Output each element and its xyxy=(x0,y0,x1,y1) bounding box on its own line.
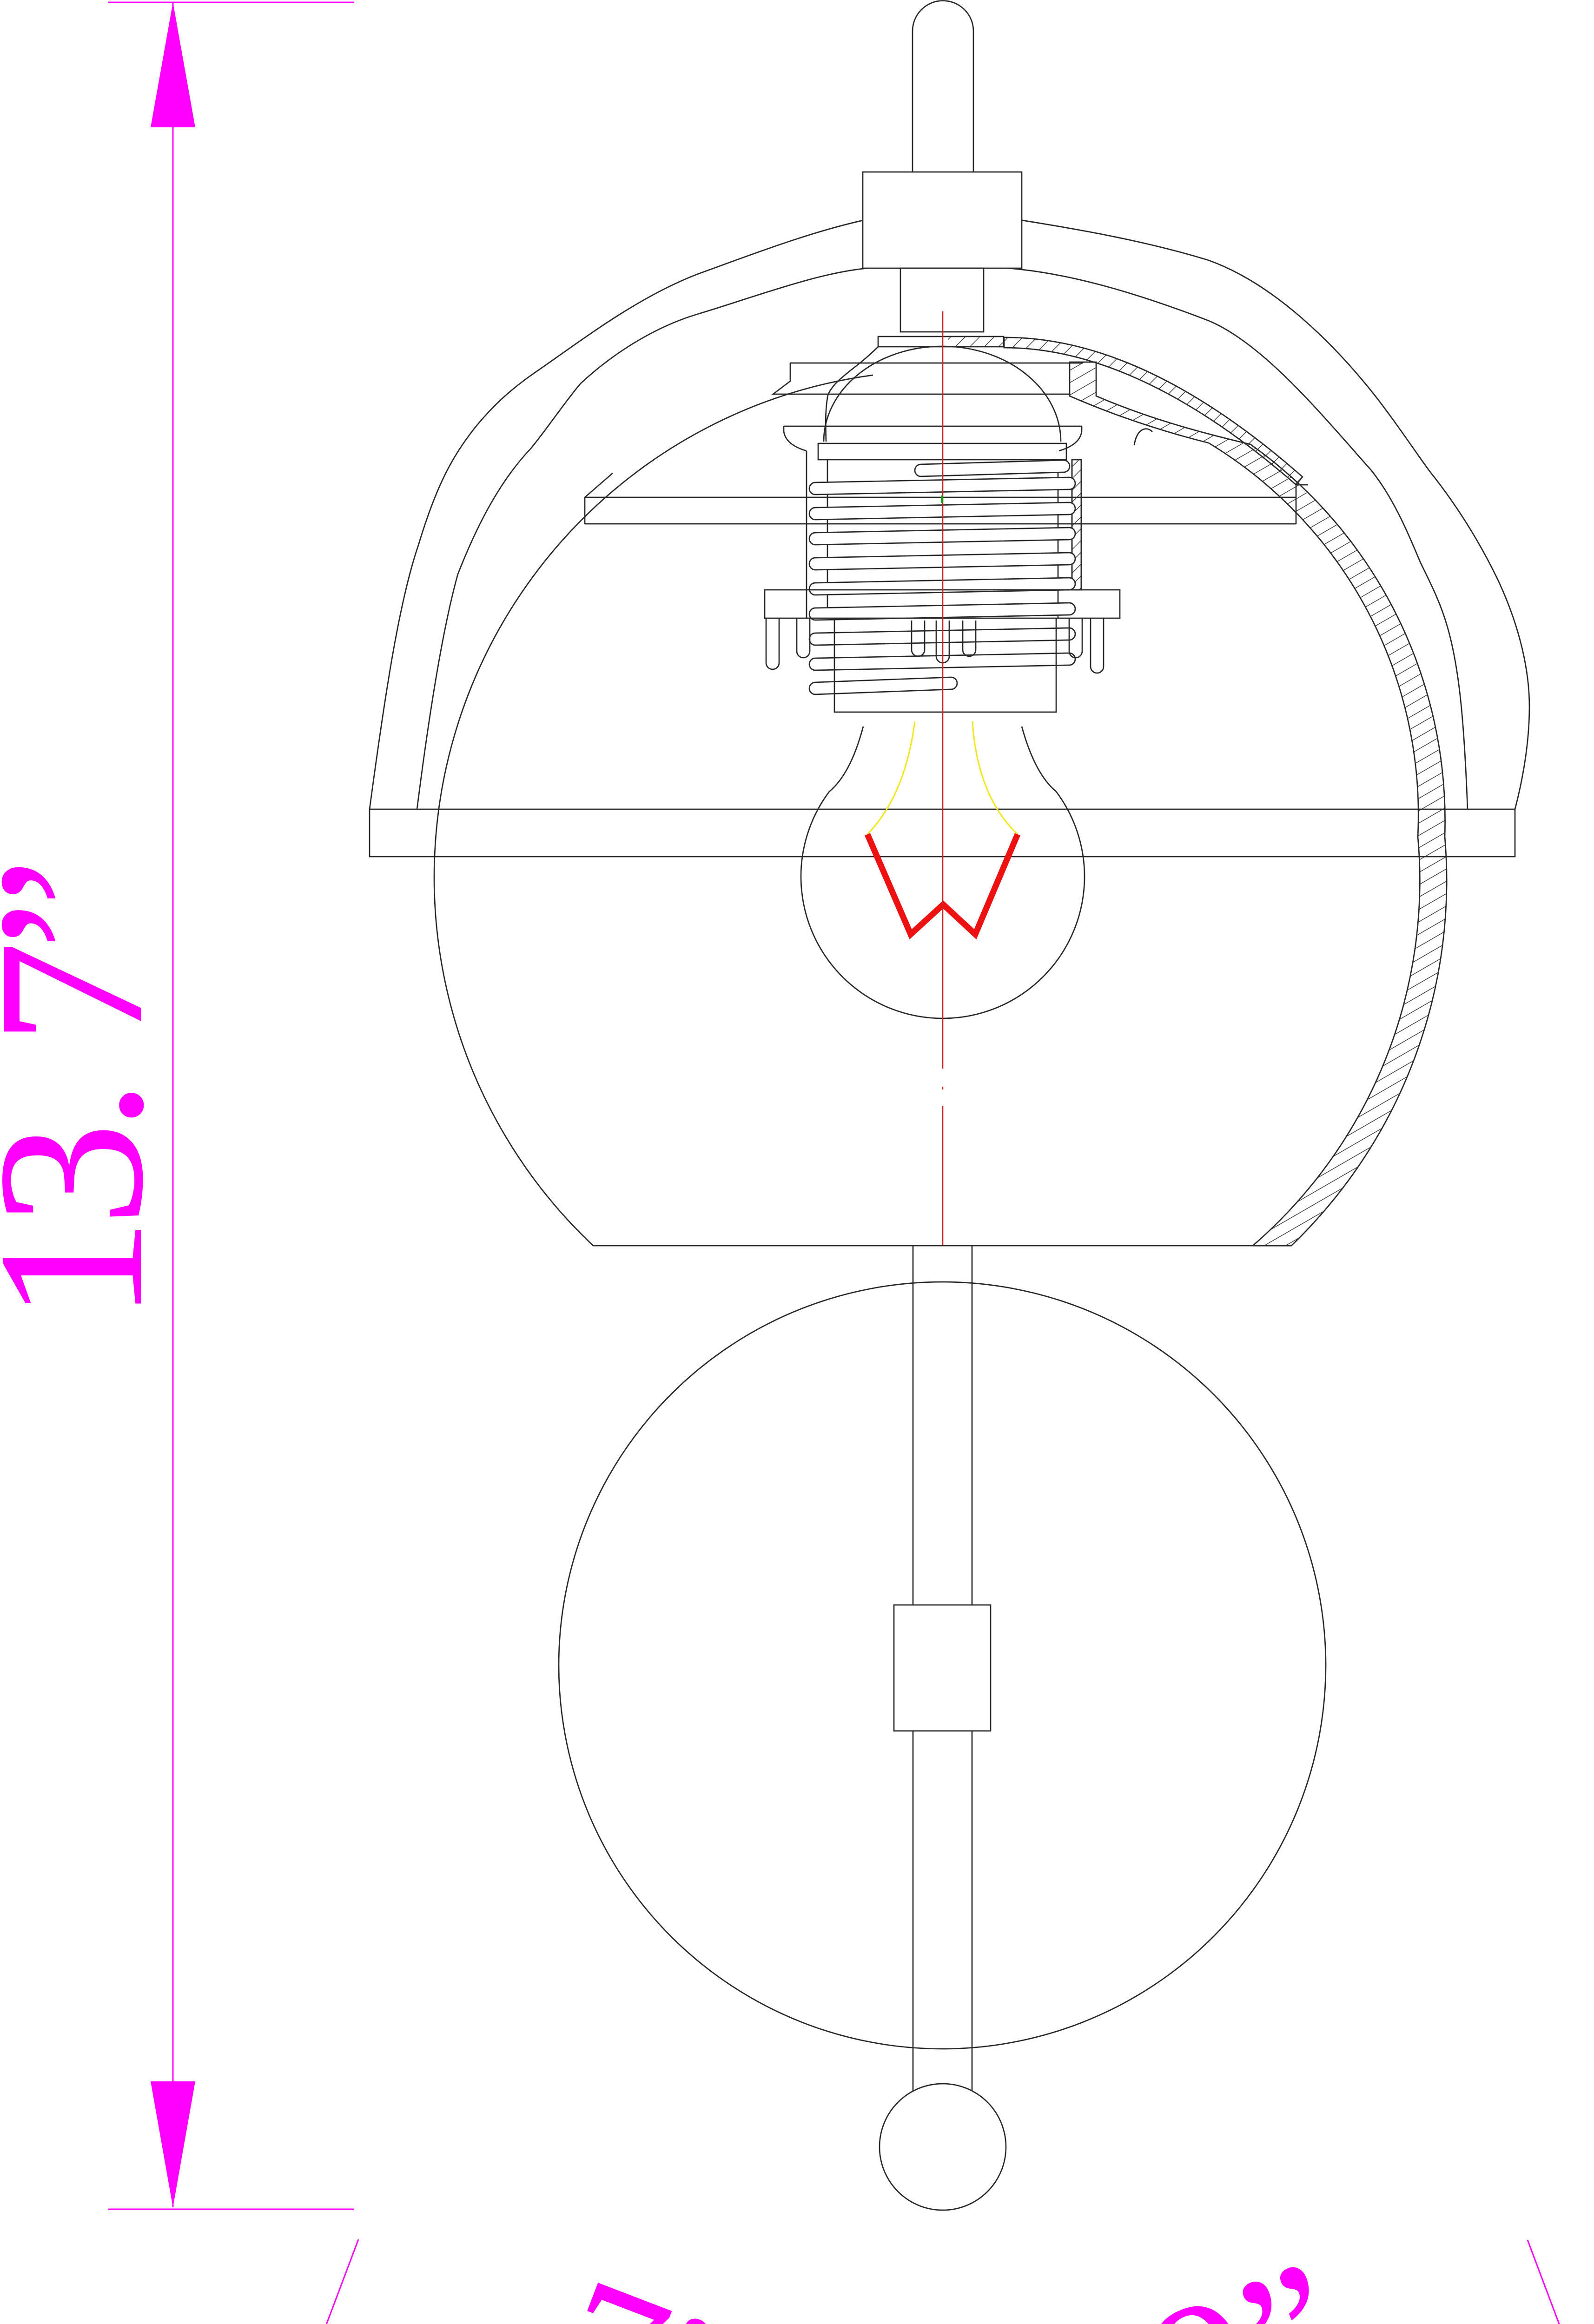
svg-text:7”: 7” xyxy=(525,2235,774,2324)
svg-text:13. 7”: 13. 7” xyxy=(0,865,186,1322)
svg-text:9”: 9” xyxy=(1122,2219,1371,2324)
